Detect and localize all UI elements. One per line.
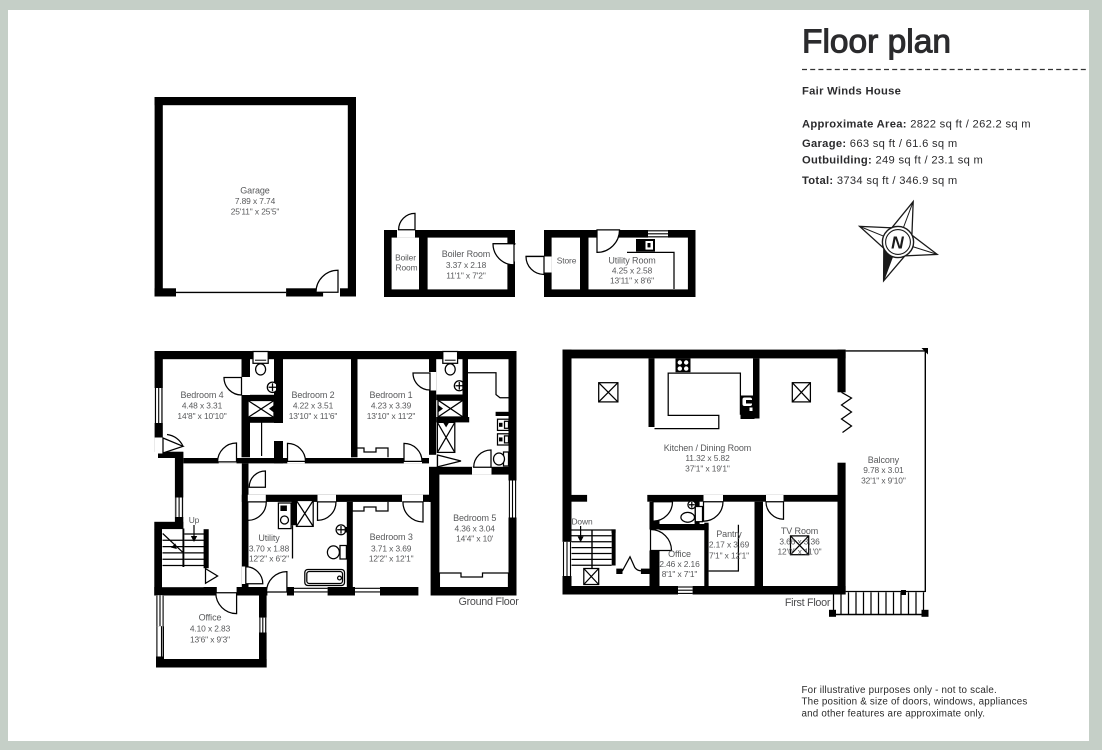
svg-text:Boiler Room: Boiler Room <box>442 249 490 259</box>
svg-text:12'2" x 12'1": 12'2" x 12'1" <box>369 554 414 564</box>
svg-text:Bedroom 4: Bedroom 4 <box>180 390 223 400</box>
svg-text:3.70 x 1.88: 3.70 x 1.88 <box>249 544 290 554</box>
svg-text:Ground Floor: Ground Floor <box>458 596 519 608</box>
svg-text:Bedroom 3: Bedroom 3 <box>370 532 413 542</box>
svg-text:4.25 x 2.58: 4.25 x 2.58 <box>612 266 653 276</box>
svg-text:Approximate Area: 2822 sq ft /: Approximate Area: 2822 sq ft / 262.2 sq … <box>802 119 1031 131</box>
svg-text:4.48 x 3.31: 4.48 x 3.31 <box>182 401 223 411</box>
svg-text:Store: Store <box>557 256 577 266</box>
svg-text:First Floor: First Floor <box>785 597 831 609</box>
svg-text:Balcony: Balcony <box>868 455 900 465</box>
svg-text:Bedroom 2: Bedroom 2 <box>291 390 334 400</box>
svg-text:and other features are approxi: and other features are approximate only. <box>802 709 986 720</box>
svg-text:Utility: Utility <box>258 533 280 543</box>
svg-text:9.78 x 3.01: 9.78 x 3.01 <box>863 465 904 475</box>
svg-text:13'6" x 9'3": 13'6" x 9'3" <box>190 635 230 645</box>
svg-text:Bedroom 5: Bedroom 5 <box>453 513 496 523</box>
svg-text:12'2" x 6'2": 12'2" x 6'2" <box>249 554 289 564</box>
svg-text:13'10" x 11'2": 13'10" x 11'2" <box>367 411 416 421</box>
svg-text:Garage: Garage <box>240 186 270 196</box>
svg-text:Office: Office <box>199 613 222 623</box>
svg-text:4.22 x 3.51: 4.22 x 3.51 <box>293 401 334 411</box>
svg-text:Down: Down <box>571 517 592 527</box>
svg-text:Boiler: Boiler <box>395 253 416 263</box>
svg-text:4.10 x 2.83: 4.10 x 2.83 <box>190 624 231 634</box>
svg-text:3.71 x 3.69: 3.71 x 3.69 <box>371 544 412 554</box>
svg-text:Utility Room: Utility Room <box>608 256 655 266</box>
svg-text:2.17 x 3.69: 2.17 x 3.69 <box>709 540 750 550</box>
svg-text:Outbuilding: 249 sq ft / 23.1: Outbuilding: 249 sq ft / 23.1 sq m <box>802 155 983 167</box>
svg-text:37'1" x 19'1": 37'1" x 19'1" <box>685 464 730 474</box>
svg-text:Floor plan: Floor plan <box>802 24 951 61</box>
svg-text:Kitchen / Dining Room: Kitchen / Dining Room <box>664 443 751 453</box>
svg-text:2.46 x 2.16: 2.46 x 2.16 <box>659 559 700 569</box>
svg-text:14'4" x 10': 14'4" x 10' <box>456 534 494 544</box>
svg-text:13'11" x 8'6": 13'11" x 8'6" <box>610 276 654 286</box>
svg-text:11'1" x 7'2": 11'1" x 7'2" <box>446 271 486 281</box>
svg-text:Total: 3734 sq ft / 346.9 sq m: Total: 3734 sq ft / 346.9 sq m <box>802 175 958 187</box>
svg-text:Office: Office <box>668 549 691 559</box>
svg-text:Pantry: Pantry <box>716 529 742 539</box>
svg-text:Garage: 663 sq ft / 61.6 sq m: Garage: 663 sq ft / 61.6 sq m <box>802 138 957 150</box>
svg-text:4.36 x 3.04: 4.36 x 3.04 <box>455 524 496 534</box>
svg-text:Up: Up <box>189 515 200 525</box>
svg-text:7'1" x 12'1": 7'1" x 12'1" <box>709 551 749 561</box>
svg-text:25'11" x 25'5": 25'11" x 25'5" <box>231 207 280 217</box>
svg-text:8'1" x 7'1": 8'1" x 7'1" <box>662 569 698 579</box>
svg-text:Fair Winds House: Fair Winds House <box>802 86 901 98</box>
svg-text:7.89 x 7.74: 7.89 x 7.74 <box>235 196 276 206</box>
svg-text:12'0" x 11'0": 12'0" x 11'0" <box>777 547 821 557</box>
svg-text:The position & size of doors,: The position & size of doors, windows, a… <box>802 697 1028 708</box>
svg-text:For illustrative purposes only: For illustrative purposes only - not to … <box>802 685 997 696</box>
svg-text:32'1" x 9'10": 32'1" x 9'10" <box>861 476 906 486</box>
svg-text:3.66 x 3.36: 3.66 x 3.36 <box>779 537 820 547</box>
svg-text:Bedroom 1: Bedroom 1 <box>369 390 412 400</box>
svg-text:11.32 x 5.82: 11.32 x 5.82 <box>685 453 730 463</box>
svg-text:TV Room: TV Room <box>781 526 818 536</box>
svg-text:4.23 x 3.39: 4.23 x 3.39 <box>371 401 412 411</box>
svg-text:13'10" x 11'6": 13'10" x 11'6" <box>289 411 338 421</box>
svg-text:N: N <box>891 233 904 253</box>
svg-text:Room: Room <box>396 263 418 273</box>
svg-text:3.37 x 2.18: 3.37 x 2.18 <box>446 260 487 270</box>
svg-text:14'8" x 10'10": 14'8" x 10'10" <box>177 411 226 421</box>
